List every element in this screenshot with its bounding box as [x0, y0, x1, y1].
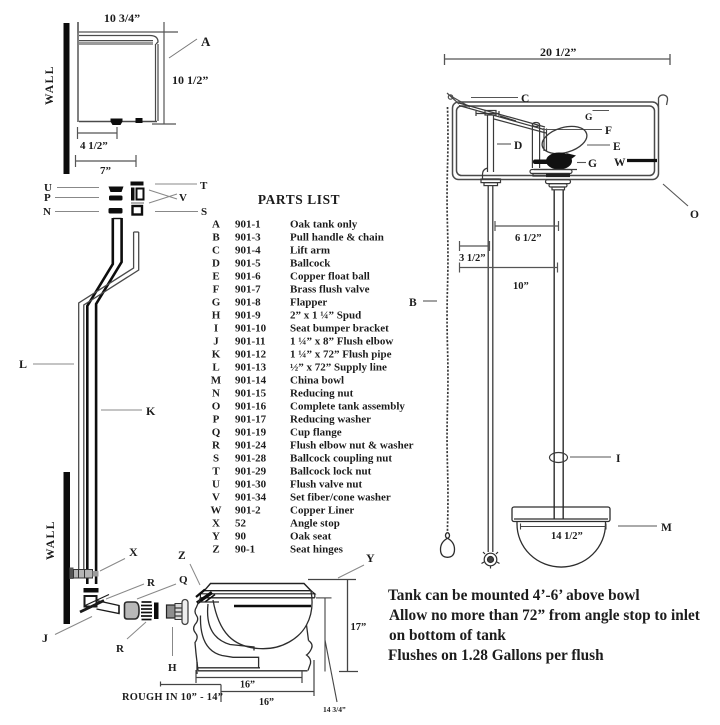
svg-text:O: O [212, 401, 221, 413]
svg-text:Tank can be mounted 4’-6’ abov: Tank can be mounted 4’-6’ above bowl [388, 587, 640, 604]
svg-text:R: R [212, 440, 221, 452]
svg-text:10”: 10” [513, 281, 529, 292]
svg-text:T: T [200, 180, 208, 192]
svg-text:901-1: 901-1 [235, 219, 261, 231]
svg-text:Z: Z [178, 550, 186, 562]
svg-text:901-9: 901-9 [235, 310, 261, 322]
svg-text:X: X [212, 518, 220, 530]
svg-text:Lift arm: Lift arm [290, 245, 330, 257]
svg-text:2” x 1 ¼” Spud: 2” x 1 ¼” Spud [290, 310, 361, 322]
svg-text:O: O [690, 209, 699, 221]
svg-text:Reducing washer: Reducing washer [290, 414, 371, 426]
svg-text:Y: Y [212, 531, 220, 543]
svg-text:Flushes on 1.28 Gallons per fl: Flushes on 1.28 Gallons per flush [388, 647, 604, 664]
svg-text:10 1/2”: 10 1/2” [172, 73, 208, 87]
svg-text:L: L [19, 357, 27, 371]
svg-text:901-4: 901-4 [235, 245, 261, 257]
svg-text:P: P [44, 192, 51, 204]
svg-text:N: N [212, 388, 220, 400]
svg-text:901-10: 901-10 [235, 323, 267, 335]
svg-text:D: D [514, 140, 522, 152]
svg-text:M: M [661, 522, 672, 534]
svg-text:W: W [614, 157, 626, 169]
svg-text:52: 52 [235, 518, 247, 530]
svg-text:Brass flush valve: Brass flush valve [290, 284, 370, 296]
svg-text:U: U [212, 479, 220, 491]
svg-text:Angle stop: Angle stop [290, 518, 340, 530]
svg-text:Cup flange: Cup flange [290, 427, 342, 439]
svg-text:A: A [212, 219, 220, 231]
svg-text:China bowl: China bowl [290, 375, 344, 387]
svg-text:Copper Liner: Copper Liner [290, 505, 354, 517]
svg-text:901-7: 901-7 [235, 284, 261, 296]
svg-text:10 3/4”: 10 3/4” [104, 11, 140, 25]
svg-text:K: K [212, 349, 221, 361]
svg-text:½” x 72” Supply line: ½” x 72” Supply line [290, 362, 387, 374]
svg-text:Copper float ball: Copper float ball [290, 271, 370, 283]
svg-text:901-6: 901-6 [235, 271, 261, 283]
svg-text:H: H [212, 310, 221, 322]
svg-text:Ballcock coupling nut: Ballcock coupling nut [290, 453, 392, 465]
svg-text:17”: 17” [351, 622, 367, 633]
svg-text:Flush valve nut: Flush valve nut [290, 479, 362, 491]
svg-text:901-28: 901-28 [235, 453, 267, 465]
svg-text:Y: Y [366, 551, 375, 565]
svg-text:Allow no more than 72” from an: Allow no more than 72” from angle stop t… [389, 607, 701, 624]
svg-text:E: E [613, 141, 621, 153]
svg-text:N: N [43, 206, 51, 218]
svg-text:PARTS LIST: PARTS LIST [258, 192, 340, 207]
svg-text:1 ¼” x 8” Flush elbow: 1 ¼” x 8” Flush elbow [290, 336, 393, 348]
svg-text:Pull handle & chain: Pull handle & chain [290, 232, 384, 244]
svg-text:Q: Q [212, 427, 221, 439]
svg-text:A: A [201, 34, 211, 49]
svg-text:S: S [201, 206, 207, 218]
svg-text:16”: 16” [240, 680, 255, 691]
svg-text:Flapper: Flapper [290, 297, 327, 309]
svg-text:901-3: 901-3 [235, 232, 261, 244]
svg-text:Ballcock lock nut: Ballcock lock nut [290, 466, 372, 478]
svg-text:Complete tank assembly: Complete tank assembly [290, 401, 405, 413]
svg-text:K: K [146, 404, 156, 418]
svg-text:S: S [213, 453, 219, 465]
svg-text:R: R [116, 643, 125, 655]
svg-text:F: F [605, 125, 612, 137]
svg-text:16”: 16” [259, 697, 274, 708]
svg-text:G: G [212, 297, 221, 309]
svg-text:901-8: 901-8 [235, 297, 261, 309]
svg-text:Oak seat: Oak seat [290, 531, 332, 543]
svg-text:901-14: 901-14 [235, 375, 267, 387]
svg-text:901-16: 901-16 [235, 401, 267, 413]
svg-text:E: E [212, 271, 219, 283]
svg-text:20 1/2”: 20 1/2” [540, 45, 576, 59]
svg-text:on bottom of tank: on bottom of tank [389, 627, 506, 644]
svg-text:Flush elbow nut & washer: Flush elbow nut & washer [290, 440, 414, 452]
svg-text:901-2: 901-2 [235, 505, 261, 517]
svg-text:R: R [147, 577, 156, 589]
svg-text:1 ¼” x 72” Flush pipe: 1 ¼” x 72” Flush pipe [290, 349, 392, 361]
svg-text:F: F [213, 284, 220, 296]
svg-text:14 3/4”: 14 3/4” [323, 705, 346, 714]
svg-text:Seat bumper bracket: Seat bumper bracket [290, 323, 389, 335]
svg-text:7”: 7” [100, 165, 111, 177]
svg-text:V: V [212, 492, 220, 504]
svg-text:90: 90 [235, 531, 247, 543]
svg-text:4 1/2”: 4 1/2” [80, 140, 108, 152]
svg-text:G: G [585, 113, 593, 123]
svg-text:6 1/2”: 6 1/2” [515, 233, 542, 244]
svg-text:Reducing nut: Reducing nut [290, 388, 354, 400]
svg-text:90-1: 90-1 [235, 544, 255, 556]
svg-text:C: C [521, 93, 529, 105]
svg-text:B: B [409, 297, 417, 309]
svg-text:ROUGH IN 10” - 14”: ROUGH IN 10” - 14” [122, 692, 223, 703]
svg-text:901-24: 901-24 [235, 440, 267, 452]
svg-text:901-30: 901-30 [235, 479, 267, 491]
svg-text:WALL: WALL [44, 65, 56, 105]
svg-text:Seat hinges: Seat hinges [290, 544, 344, 556]
svg-text:Set fiber/cone washer: Set fiber/cone washer [290, 492, 391, 504]
svg-text:901-29: 901-29 [235, 466, 267, 478]
svg-text:Oak tank only: Oak tank only [290, 219, 358, 231]
svg-text:M: M [211, 375, 222, 387]
svg-text:901-19: 901-19 [235, 427, 267, 439]
svg-text:901-5: 901-5 [235, 258, 261, 270]
svg-text:I: I [214, 323, 218, 335]
svg-text:W: W [211, 505, 222, 517]
svg-text:D: D [212, 258, 220, 270]
svg-text:I: I [616, 453, 621, 465]
svg-text:G: G [588, 158, 597, 170]
svg-text:Z: Z [212, 544, 219, 556]
svg-text:V: V [179, 192, 187, 204]
svg-text:H: H [168, 662, 177, 674]
svg-text:WALL: WALL [45, 520, 57, 560]
svg-text:B: B [212, 232, 220, 244]
svg-text:901-17: 901-17 [235, 414, 267, 426]
svg-text:C: C [212, 245, 220, 257]
svg-text:L: L [212, 362, 219, 374]
svg-text:J: J [42, 631, 48, 645]
svg-text:X: X [129, 545, 138, 559]
svg-text:Ballcock: Ballcock [290, 258, 331, 270]
svg-text:901-34: 901-34 [235, 492, 267, 504]
svg-text:901-11: 901-11 [235, 336, 266, 348]
svg-text:901-13: 901-13 [235, 362, 267, 374]
svg-text:T: T [212, 466, 220, 478]
svg-text:Q: Q [179, 574, 188, 586]
svg-text:901-15: 901-15 [235, 388, 267, 400]
svg-text:J: J [213, 336, 219, 348]
svg-text:P: P [213, 414, 220, 426]
svg-text:3 1/2”: 3 1/2” [459, 253, 486, 264]
svg-text:901-12: 901-12 [235, 349, 267, 361]
svg-text:14 1/2”: 14 1/2” [551, 531, 583, 542]
